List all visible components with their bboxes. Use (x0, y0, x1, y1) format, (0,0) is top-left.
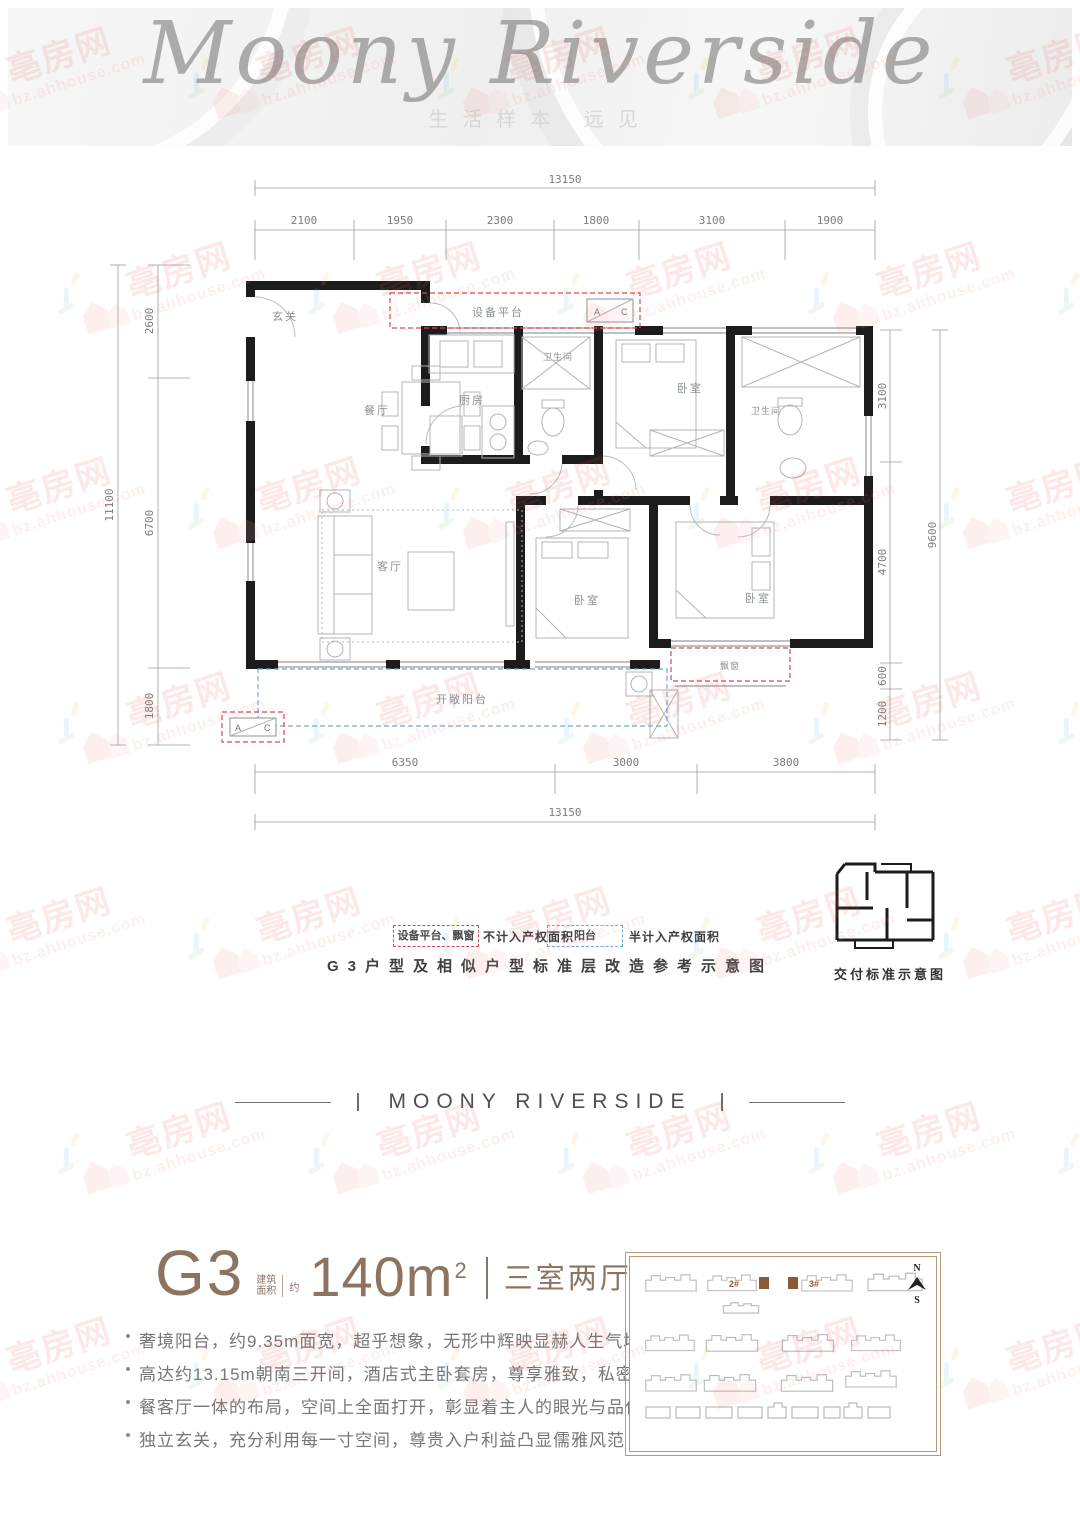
site-plan: 2# 3# N S (629, 1256, 937, 1452)
feature-text: 奢境阳台，约9.35m面宽，超乎想象，无形中辉映显赫人生气场 (139, 1332, 641, 1351)
floor-plan: 13150 2100 1950 2300 1800 3100 1900 1110… (90, 160, 970, 870)
label-equipment-platform: 设备平台 (472, 305, 524, 319)
dashed-zones: A C A C (222, 293, 790, 742)
dim-bottom-1: 3000 (613, 756, 640, 769)
header-banner: Moony Riverside 生活样本 远见 (8, 8, 1072, 146)
bullet-dot (126, 1400, 130, 1404)
dim-top-0: 2100 (291, 214, 318, 227)
divider-bar (357, 1093, 359, 1111)
area-superscript: 2 (454, 1258, 467, 1283)
ac-label-a: A (594, 307, 600, 317)
ac-label-c: C (264, 723, 271, 733)
dim-right-3: 1200 (876, 701, 889, 728)
room-entry: 玄关 (272, 309, 298, 323)
room-dining: 餐厅 (364, 403, 390, 417)
dim-right-0: 3100 (876, 383, 889, 410)
dim-bottom-0: 6350 (392, 756, 419, 769)
feature-item: 餐客厅一体的布局，空间上全面打开，彰显着主人的眼光与品位 (126, 1393, 686, 1426)
room-bedroom-mid: 卧室 (574, 593, 600, 607)
legend-blue-box: 阳台 (547, 925, 623, 947)
area-prefix-line2: 面积 (256, 1286, 276, 1297)
site-watermark: 亳房网bz.ahhouse.com (298, 1062, 541, 1235)
divider-line (749, 1102, 845, 1103)
site-watermark: 亳房网bz.ahhouse.com (1048, 1062, 1080, 1235)
legend-red-box: 设备平台、飘窗 (393, 925, 479, 947)
site-watermark: 亳房网bz.ahhouse.com (0, 847, 172, 1020)
divider-line (235, 1102, 331, 1103)
feature-item: 奢境阳台，约9.35m面宽，超乎想象，无形中辉映显赫人生气场 (126, 1327, 686, 1360)
delivery-plan-caption: 交付标准示意图 (800, 964, 980, 983)
dim-right-total: 9600 (926, 522, 939, 549)
room-bedroom-top: 卧室 (677, 381, 703, 395)
room-kitchen: 厨房 (459, 394, 485, 407)
room-bath-top: 卫生间 (543, 351, 573, 362)
dim-top-total: 13150 (548, 173, 581, 186)
dim-bottom-2: 3800 (773, 756, 800, 769)
compass-south-label: S (914, 1295, 920, 1306)
bullet-dot (126, 1367, 130, 1371)
meta-separator (282, 1275, 283, 1297)
building-3-highlight (788, 1277, 798, 1289)
dim-right-1: 4700 (876, 549, 889, 576)
feature-item: 高达约13.15m朝南三开间，酒店式主卧套房，尊享雅致，私密舒心 (126, 1360, 686, 1393)
site-watermark: 亳房网bz.ahhouse.com (548, 1062, 791, 1235)
dim-bottom-total: 13150 (548, 806, 581, 819)
feature-list: 奢境阳台，约9.35m面宽，超乎想象，无形中辉映显赫人生气场 高达约13.15m… (126, 1327, 686, 1459)
furniture-layer (318, 335, 860, 738)
ac-label-a: A (235, 723, 241, 733)
area-value: 140m (309, 1245, 453, 1308)
unit-title-block: G3 建筑 面积 约 140m2 三室两厅两卫 (155, 1243, 696, 1303)
building-2-label: 2# (729, 1279, 739, 1289)
compass-north-label: N (913, 1263, 921, 1274)
building-3-label: 3# (809, 1279, 819, 1289)
legend-blue-desc: 半计入产权面积 (629, 928, 720, 945)
floor-plan-svg: 13150 2100 1950 2300 1800 3100 1900 1110… (90, 160, 970, 870)
site-watermark: 亳房网bz.ahhouse.com (48, 1062, 291, 1235)
approx-label: 约 (289, 1279, 299, 1294)
dim-top-3: 1800 (583, 214, 610, 227)
unit-name: G3 (155, 1243, 244, 1303)
dim-right-2: 600 (876, 666, 889, 686)
room-bath-right: 卫生间 (751, 405, 781, 416)
building-outlines (646, 1273, 922, 1418)
feature-text: 高达约13.15m朝南三开间，酒店式主卧套房，尊享雅致，私密舒心 (139, 1365, 670, 1384)
site-watermark: 亳房网bz.ahhouse.com (178, 847, 421, 1020)
site-watermark: 亳房网bz.ahhouse.com (1048, 632, 1080, 805)
site-watermark: 亳房网bz.ahhouse.com (1048, 202, 1080, 375)
bullet-dot (126, 1433, 130, 1437)
dim-left-1: 6700 (143, 510, 156, 537)
building-2-highlight (759, 1277, 769, 1289)
area-prefix-line1: 建筑 (256, 1275, 276, 1286)
label-open-balcony: 开敞阳台 (436, 692, 488, 706)
title-vertical-bar (486, 1257, 488, 1299)
dim-left-0: 2600 (143, 308, 156, 335)
label-bay-window: 飘窗 (720, 660, 740, 671)
dim-left-total: 11100 (103, 488, 116, 521)
feature-text: 独立玄关，充分利用每一寸空间，尊贵入户利益凸显儒雅风范 (139, 1431, 625, 1450)
section-divider: MOONY RIVERSIDE (0, 1090, 1080, 1114)
flyer-page: Moony Riverside 生活样本 远见 (0, 0, 1080, 1527)
site-watermark: 亳房网bz.ahhouse.com (798, 1062, 1041, 1235)
dim-top-4: 3100 (699, 214, 726, 227)
feature-item: 独立玄关，充分利用每一寸空间，尊贵入户利益凸显儒雅风范 (126, 1426, 686, 1459)
divider-title: MOONY RIVERSIDE (385, 1090, 696, 1114)
dim-top-5: 1900 (817, 214, 844, 227)
room-living: 客厅 (377, 559, 403, 573)
room-bedroom-right: 卧室 (745, 591, 771, 605)
header-slogan: 生活样本 远见 (8, 103, 1072, 132)
ac-label-c: C (621, 307, 628, 317)
dim-top-1: 1950 (387, 214, 414, 227)
bullet-dot (126, 1334, 130, 1338)
project-name-script: Moony Riverside (8, 8, 1072, 104)
feature-text: 餐客厅一体的布局，空间上全面打开，彰显着主人的眼光与品位 (139, 1398, 643, 1417)
dim-top-2: 2300 (487, 214, 514, 227)
dim-left-2: 1800 (143, 693, 156, 720)
plan-caption: G3户型及相似户型标准层改造参考示意图 (240, 955, 860, 976)
site-watermark: 亳房网bz.ahhouse.com (928, 1277, 1080, 1450)
unit-area: 140m2 (309, 1245, 467, 1303)
area-meta: 建筑 面积 约 (256, 1275, 299, 1297)
divider-bar (721, 1093, 723, 1111)
delivery-standard-plan (815, 850, 965, 962)
area-prefix: 建筑 面积 (256, 1275, 276, 1297)
